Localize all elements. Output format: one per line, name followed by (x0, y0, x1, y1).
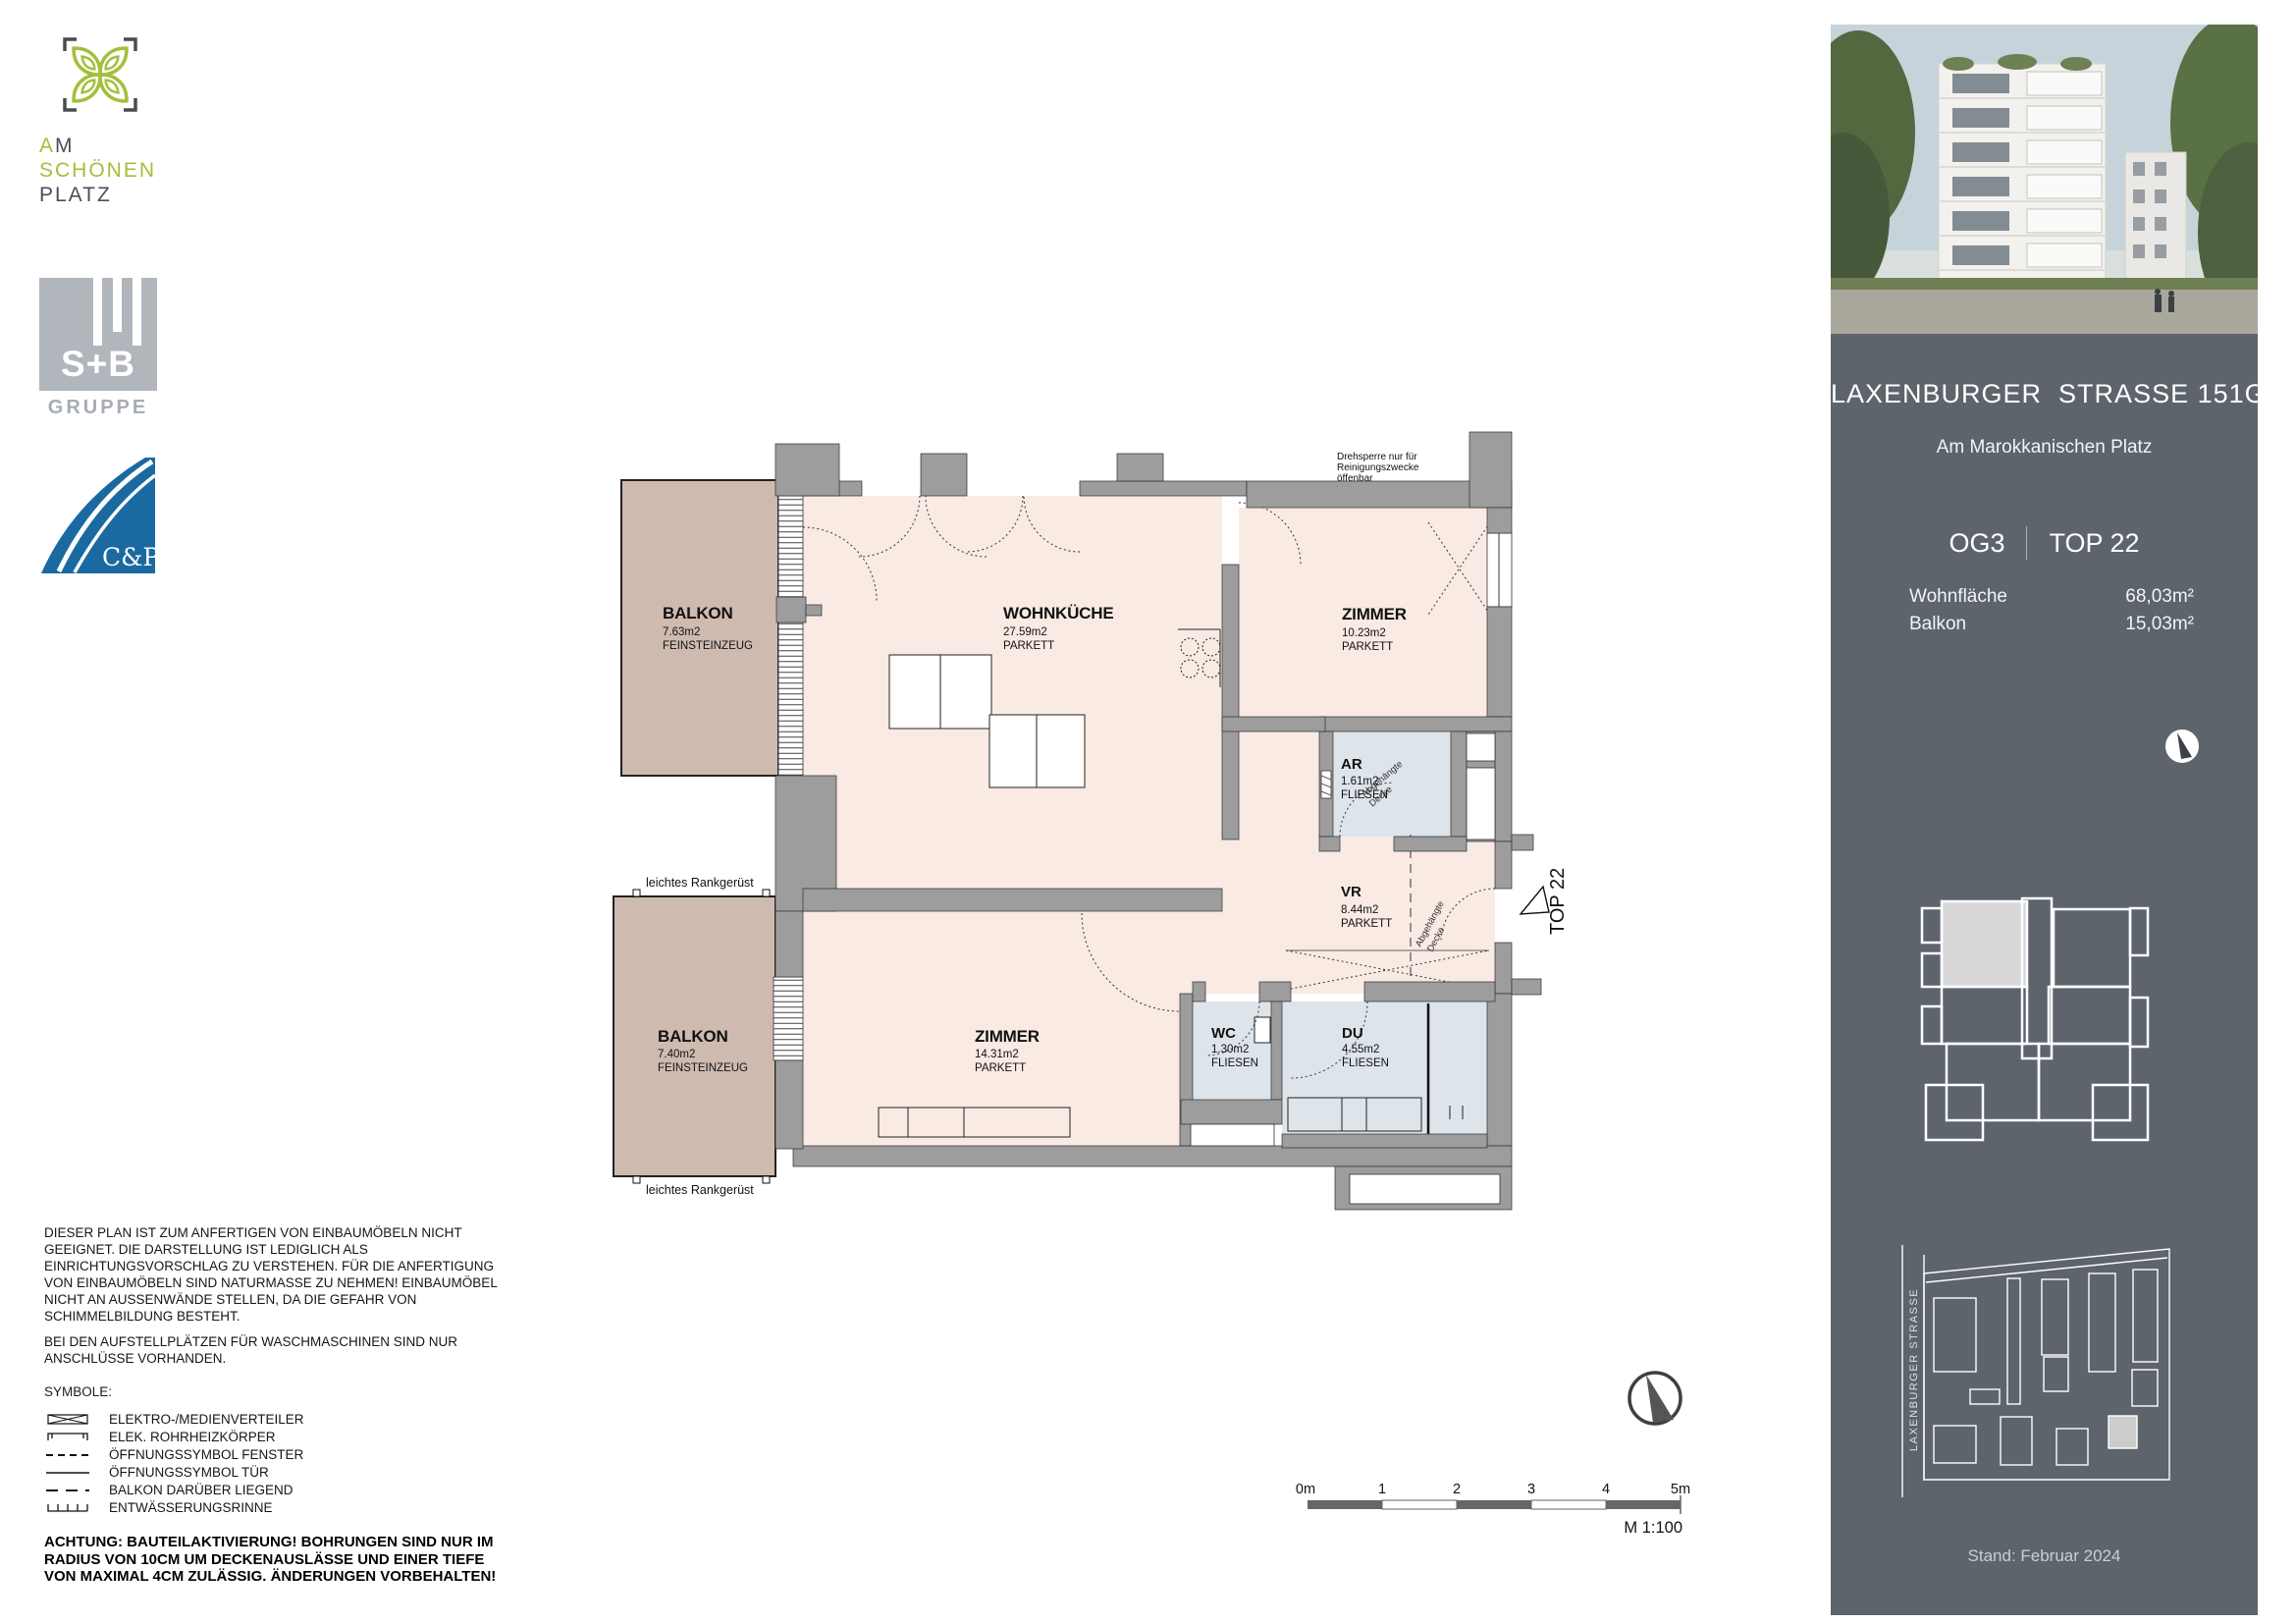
room-name: DU (1342, 1025, 1363, 1042)
sidebar-compass-icon (2161, 725, 2204, 768)
date-note: Stand: Februar 2024 (1831, 1546, 2258, 1566)
radiator-icon (44, 1430, 95, 1444)
legend-item: ELEK. ROHRHEIZKÖRPER (44, 1429, 498, 1445)
notes-block: DIESER PLAN IST ZUM ANFERTIGEN VON EINBA… (44, 1224, 498, 1586)
room-name: BALKON (663, 604, 733, 623)
room-floor: FLIESEN (1342, 1057, 1389, 1069)
project-title: LAXENBURGER STRASSE 151G (1831, 379, 2258, 409)
area-label: Wohnfläche (1909, 586, 2125, 608)
entrance-arrow-icon (1521, 887, 1549, 914)
room-name: WOHNKÜCHE (1003, 604, 1113, 623)
room-area: 7.40m2 (658, 1049, 695, 1060)
room-floor: PARKETT (1003, 640, 1054, 652)
legend-label: ELEK. ROHRHEIZKÖRPER (109, 1430, 276, 1444)
note-rankgeruest: leichtes Rankgerüst (646, 1183, 754, 1197)
street-label: LAXENBURGER STRASSE (1908, 1288, 1920, 1451)
note-drehsperre: Drehsperre nur für (1337, 452, 1417, 462)
scale-tick: 0m (1296, 1482, 1315, 1497)
legend-item: BALKON DARÜBER LIEGEND (44, 1482, 498, 1498)
legend-label: ELEKTRO-/MEDIENVERTEILER (109, 1412, 304, 1427)
scale-tick: 5m (1671, 1482, 1690, 1497)
legend-item: ENTWÄSSERUNGSRINNE (44, 1499, 498, 1516)
legend-item: ÖFFNUNGSSYMBOL TÜR (44, 1464, 498, 1481)
scale-tick: 4 (1602, 1482, 1610, 1497)
scale-tick: 1 (1378, 1482, 1386, 1497)
unit-identifier: OG3 TOP 22 (1831, 526, 2258, 560)
room-name: AR (1341, 756, 1362, 773)
legend-item: ÖFFNUNGSSYMBOL FENSTER (44, 1446, 498, 1463)
warning-text: ACHTUNG: BAUTEILAKTIVIERUNG! BOHRUNGEN S… (44, 1534, 506, 1586)
note-drehsperre: öffenbar (1337, 473, 1373, 484)
legend-label: BALKON DARÜBER LIEGEND (109, 1483, 294, 1497)
building-rendering (1831, 25, 2258, 334)
scale-bar: 0m 1 2 3 4 5m M 1:100 (1296, 1482, 1690, 1537)
room-area: 14.31m2 (975, 1049, 1019, 1060)
floorplan-sheet: AM SCHÖNEN PLATZ S+B GRUPPE C&P (0, 0, 2296, 1624)
room-floor: FLIESEN (1211, 1057, 1258, 1069)
room-area: 1.30m2 (1211, 1044, 1249, 1056)
legend-label: ÖFFNUNGSSYMBOL FENSTER (109, 1447, 303, 1462)
room-floor: FEINSTEINZEUG (658, 1062, 748, 1074)
room-area: 7.63m2 (663, 626, 700, 638)
legend-label: ENTWÄSSERUNGSRINNE (109, 1500, 273, 1515)
balcony-above-icon (44, 1483, 95, 1497)
room-floor: PARKETT (1341, 918, 1392, 930)
unit-key-plan (1909, 882, 2164, 1162)
room-floor: PARKETT (975, 1062, 1026, 1074)
project-subtitle: Am Marokkanischen Platz (1831, 437, 2258, 459)
entrance-top-label: TOP 22 (1547, 868, 1569, 935)
area-label: Balkon (1909, 614, 2125, 635)
room-name: BALKON (658, 1027, 728, 1046)
scale-tick: 2 (1453, 1482, 1461, 1497)
room-name: ZIMMER (1342, 605, 1407, 623)
unit-number: TOP 22 (2049, 528, 2139, 559)
scale-tick: 3 (1527, 1482, 1535, 1497)
door-opening-icon (44, 1465, 95, 1480)
legend-label: ÖFFNUNGSSYMBOL TÜR (109, 1465, 269, 1480)
room-floor: FEINSTEINZEUG (663, 640, 753, 652)
scale-ratio: M 1:100 (1624, 1519, 1682, 1537)
disclaimer-paragraph: DIESER PLAN IST ZUM ANFERTIGEN VON EINBA… (44, 1224, 498, 1325)
area-row: Wohnfläche 68,03m² (1909, 586, 2194, 608)
area-value: 15,03m² (2125, 614, 2194, 635)
room-area: 8.44m2 (1341, 904, 1378, 916)
room-area: 27.59m2 (1003, 626, 1047, 638)
room-name: ZIMMER (975, 1027, 1040, 1046)
info-sidebar: LAXENBURGER STRASSE 151G Am Marokkanisch… (1831, 334, 2258, 1615)
compass-icon (1629, 1373, 1681, 1424)
note-rankgeruest: leichtes Rankgerüst (646, 876, 754, 890)
legend-item: ELEKTRO-/MEDIENVERTEILER (44, 1411, 498, 1428)
area-value: 68,03m² (2125, 586, 2194, 608)
unit-floor: OG3 (1949, 528, 2004, 559)
area-row: Balkon 15,03m² (1909, 614, 2194, 635)
symbols-heading: SYMBOLE: (44, 1384, 498, 1399)
electro-distributor-icon (44, 1412, 95, 1427)
divider (2026, 526, 2027, 560)
room-name: WC (1211, 1025, 1236, 1042)
room-floor: PARKETT (1342, 641, 1393, 653)
room-area: 4.55m2 (1342, 1044, 1379, 1056)
note-drehsperre: Reinigungszwecke (1337, 462, 1419, 473)
room-area: 10.23m2 (1342, 627, 1386, 639)
drainage-channel-icon (44, 1500, 95, 1515)
window-opening-icon (44, 1447, 95, 1462)
room-name: VR (1341, 884, 1362, 900)
disclaimer-paragraph: BEI DEN AUFSTELLPLÄTZEN FÜR WASCHMASCHIN… (44, 1333, 498, 1367)
site-plan: LAXENBURGER STRASSE (1890, 1232, 2179, 1507)
